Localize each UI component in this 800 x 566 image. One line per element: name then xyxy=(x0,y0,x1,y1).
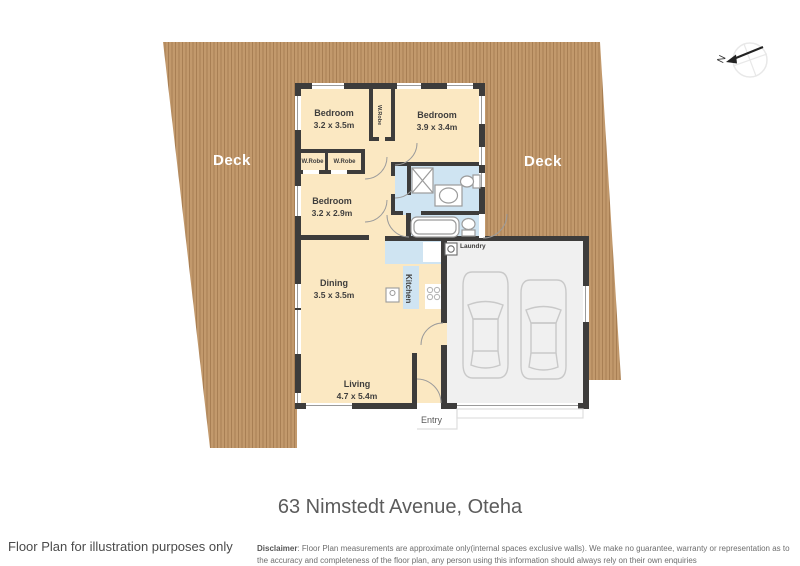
room-dims: 3.2 x 3.5m xyxy=(294,120,374,131)
room-name: Bedroom xyxy=(292,196,372,208)
entry-door-opening xyxy=(417,403,441,409)
room-dims: 3.9 x 3.4m xyxy=(397,122,477,133)
window xyxy=(295,393,301,403)
floor-plan-page: Deck Deck xyxy=(0,0,800,566)
wall xyxy=(395,211,403,215)
deck-left-label: Deck xyxy=(213,152,251,169)
room-label-bedroom1: Bedroom 3.2 x 3.5m xyxy=(294,108,374,131)
window xyxy=(479,96,485,124)
wall xyxy=(325,149,328,174)
garage-door xyxy=(457,403,578,409)
page-title: 63 Nimstedt Avenue, Oteha xyxy=(0,496,800,519)
room-name: Living xyxy=(317,379,397,391)
room-dims: 3.2 x 2.9m xyxy=(292,208,372,219)
wall xyxy=(295,83,301,409)
room-name: Bedroom xyxy=(294,108,374,120)
closet-label-wrobe: W.Robe xyxy=(329,155,360,169)
window xyxy=(583,286,589,322)
closet-label-wrobe: W.Robe xyxy=(376,97,382,133)
wall xyxy=(295,235,369,240)
window xyxy=(312,83,344,89)
room-label-kitchen: Kitchen xyxy=(404,266,413,312)
closet-door-opening xyxy=(303,170,319,174)
north-label: N xyxy=(716,54,729,65)
room-name: Bedroom xyxy=(397,110,477,122)
window xyxy=(479,173,485,187)
compass-icon: N xyxy=(716,43,767,77)
wall xyxy=(412,353,417,409)
wall xyxy=(391,162,481,166)
wall xyxy=(441,345,447,409)
disclaimer: Disclaimer: Floor Plan measurements are … xyxy=(257,543,797,566)
north-arrow-icon xyxy=(731,47,763,60)
deck-right-label: Deck xyxy=(524,153,562,170)
room-dims: 4.7 x 5.4m xyxy=(317,391,397,402)
wall xyxy=(361,149,365,174)
wall xyxy=(385,236,589,241)
disclaimer-label: Disclaimer xyxy=(257,544,297,553)
room-label-dining: Dining 3.5 x 3.5m xyxy=(294,278,374,301)
garage-floor xyxy=(447,241,583,403)
closet-label-wrobe: W.Robe xyxy=(301,155,324,169)
wall xyxy=(385,137,395,141)
wall xyxy=(369,137,379,141)
room-name: Dining xyxy=(294,278,374,290)
room-label-living: Living 4.7 x 5.4m xyxy=(317,379,397,402)
illustration-note: Floor Plan for illustration purposes onl… xyxy=(8,539,233,554)
room-label-bedroom3: Bedroom 3.2 x 2.9m xyxy=(292,196,372,219)
window xyxy=(397,83,421,89)
window xyxy=(479,147,485,165)
room-label-bedroom2: Bedroom 3.9 x 3.4m xyxy=(397,110,477,133)
closet-door-opening xyxy=(331,170,347,174)
fridge-space xyxy=(423,242,441,262)
wall xyxy=(406,213,411,239)
disclaimer-text: : Floor Plan measurements are approximat… xyxy=(257,544,790,565)
window xyxy=(306,403,352,409)
driveway-outline xyxy=(457,409,583,418)
wall xyxy=(407,166,411,195)
wall xyxy=(441,236,447,323)
deck-door-opening xyxy=(479,214,485,238)
room-label-laundry: Laundry xyxy=(460,243,486,250)
wall xyxy=(391,87,395,141)
wall xyxy=(421,211,481,215)
room-label-entry: Entry xyxy=(421,415,442,425)
north-arrow-icon xyxy=(726,55,737,64)
room-dims: 3.5 x 3.5m xyxy=(294,290,374,301)
window xyxy=(447,83,473,89)
kitchen-bench xyxy=(425,284,441,309)
wall xyxy=(297,149,365,153)
wall xyxy=(391,166,395,176)
wall xyxy=(583,236,589,409)
window xyxy=(295,310,301,354)
